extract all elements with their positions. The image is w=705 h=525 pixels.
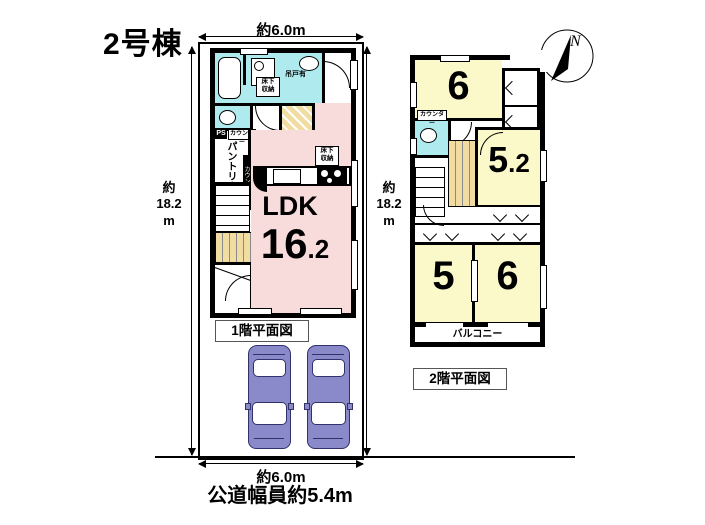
ldk-size-dec: .2	[308, 234, 330, 264]
southwest-bedroom-size: 5	[415, 256, 472, 296]
window	[351, 240, 358, 290]
wall	[415, 155, 448, 158]
ldk-label: LDK	[235, 193, 345, 220]
window	[540, 150, 547, 182]
road-edge-line	[155, 456, 575, 458]
dim-bottom-line	[199, 463, 363, 464]
ldk-size-int: 16	[261, 220, 308, 267]
stove	[317, 167, 347, 185]
window	[540, 265, 547, 309]
burner-icon	[334, 170, 341, 177]
wall	[415, 223, 540, 225]
kitchen-sink	[273, 169, 301, 184]
pipe-space-box: PS	[215, 128, 227, 139]
entrance-step	[282, 106, 312, 133]
front-door-arc	[323, 61, 350, 88]
arrowhead	[363, 448, 371, 456]
burner-icon	[327, 178, 332, 183]
car-trunk-line	[312, 354, 344, 355]
counter-label-2f: カウンター	[417, 110, 447, 121]
second-floor-building: 6 カウンター 5.2	[410, 55, 545, 347]
car-mirror	[288, 403, 294, 410]
wall	[505, 105, 537, 107]
ldk-size: 16.2	[240, 223, 350, 265]
toilet-bowl-2f	[420, 128, 437, 143]
window	[440, 55, 470, 62]
dim-top-line	[199, 36, 363, 37]
arrowhead	[188, 448, 196, 456]
window	[351, 160, 358, 207]
door-arc	[255, 106, 280, 131]
front-door-opening	[350, 60, 358, 90]
hanging-cupboard-label: 吊戸有	[285, 69, 306, 79]
car-mirror	[304, 403, 310, 410]
window	[410, 82, 417, 108]
room-size-int: 6	[496, 254, 518, 298]
folding-door-icon	[491, 227, 505, 241]
burner-icon	[321, 170, 328, 177]
car-mirror	[245, 403, 251, 410]
washer-drum-icon	[254, 61, 264, 71]
car-windshield	[252, 402, 287, 425]
car-rear-window	[253, 359, 286, 377]
car-mirror	[347, 403, 353, 410]
car-bumper-line	[254, 438, 284, 439]
car-trunk-line	[253, 354, 285, 355]
road-width-label: 公道幅員約5.4m	[180, 479, 380, 508]
underfloor-storage-label: 床下 収納	[256, 77, 280, 97]
car-rear-window	[312, 359, 345, 377]
balcony: バルコニー	[415, 327, 540, 342]
dim-right-line	[366, 47, 367, 455]
car-windshield	[311, 402, 346, 425]
room-size-int: 5	[432, 254, 454, 298]
floor1-caption: 1階平面図	[215, 320, 309, 342]
bathtub	[218, 57, 241, 99]
first-floor-building: 床下 収納 吊戸有 PS カウンター パントリー カウンター	[210, 48, 356, 318]
southeast-bedroom-size: 6	[475, 256, 540, 296]
folding-door-icon	[423, 227, 437, 241]
arrowhead	[363, 46, 371, 54]
underfloor-storage-label-2: 床下 収納	[315, 146, 339, 166]
folding-door-icon	[493, 208, 507, 222]
building-title: 2号棟	[103, 19, 183, 63]
car-bumper-line	[313, 438, 343, 439]
door-arc	[225, 275, 251, 301]
toilet-bowl	[219, 110, 236, 125]
floor2-caption: 2階平面図	[413, 368, 507, 390]
window	[238, 308, 272, 315]
arrowhead	[356, 33, 364, 41]
folding-door-icon	[505, 81, 519, 95]
ldk-extension	[315, 103, 351, 130]
car	[307, 345, 350, 449]
dim-left-label: 約 18.2 m	[150, 180, 188, 229]
dim-left-line	[191, 47, 192, 455]
wall	[475, 205, 540, 207]
room-size-dec: .2	[508, 148, 530, 178]
room-size-int: 6	[447, 64, 469, 108]
north-bedroom-size: 6	[415, 66, 502, 106]
arrowhead	[188, 46, 196, 54]
window	[410, 138, 417, 155]
folding-door-icon	[445, 227, 459, 241]
window	[300, 308, 342, 315]
car	[248, 345, 291, 449]
window	[240, 48, 268, 55]
folding-door-icon	[515, 208, 529, 222]
dim-right-label: 約 18.2 m	[370, 180, 408, 229]
wall	[243, 53, 246, 85]
floorplan-sheet: 2号棟 約6.0m 約 18.2 m 約 18.2 m 床下 収納 吊戸有	[0, 0, 705, 525]
folding-door-icon	[513, 227, 527, 241]
arrowhead	[198, 33, 206, 41]
